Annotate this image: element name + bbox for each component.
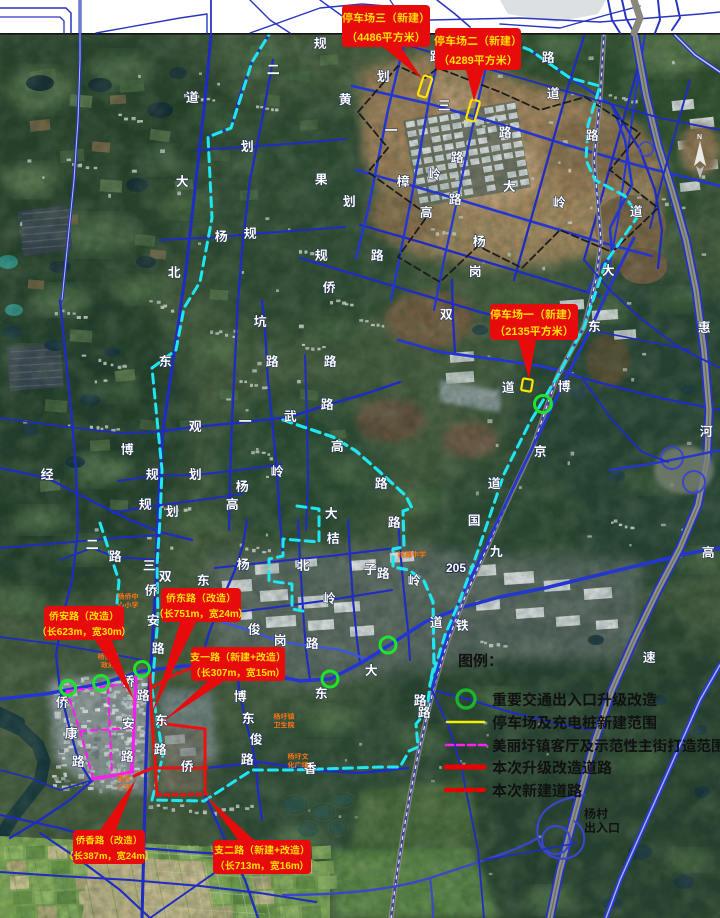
svg-text:24m: 24m	[219, 609, 239, 620]
svg-text:+: +	[274, 846, 280, 857]
svg-text:4486: 4486	[357, 32, 381, 44]
svg-text:15m: 15m	[256, 668, 276, 679]
svg-text:387m: 387m	[83, 851, 107, 862]
svg-text:30m: 30m	[102, 627, 122, 638]
svg-text:4289: 4289	[449, 55, 473, 67]
svg-text:713m: 713m	[235, 861, 261, 872]
svg-text:2135: 2135	[505, 326, 529, 338]
svg-text:N: N	[697, 134, 702, 141]
svg-text:307m: 307m	[211, 668, 237, 679]
svg-text:16m: 16m	[280, 861, 300, 872]
svg-text:205: 205	[446, 561, 466, 575]
svg-text:623m: 623m	[57, 627, 83, 638]
svg-text:751m: 751m	[174, 609, 200, 620]
svg-text:+: +	[250, 653, 256, 664]
svg-text:24m: 24m	[126, 851, 145, 862]
